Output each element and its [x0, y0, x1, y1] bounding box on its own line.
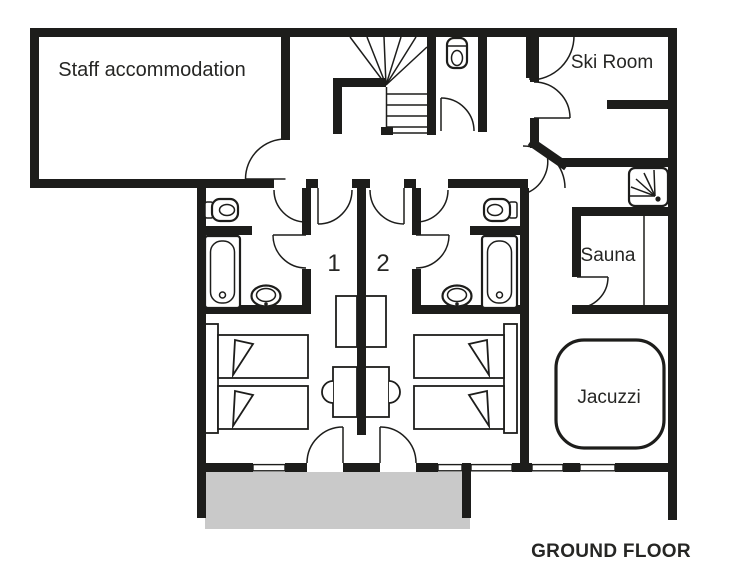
window [253, 465, 285, 471]
door-swing [273, 235, 306, 268]
shower-icon [629, 168, 668, 206]
bedroom-2-furniture [365, 296, 517, 433]
wardrobe [365, 296, 386, 347]
wall [563, 463, 580, 472]
shower-spray [654, 170, 655, 196]
stair-winder [367, 37, 386, 85]
floor-plan: Staff accommodation Ski Room Sauna Jacuz… [0, 0, 737, 580]
washbasin-bowl [448, 289, 467, 302]
washbasin-tap [455, 302, 459, 306]
wall [357, 188, 366, 435]
stair-winder [384, 37, 386, 85]
wall [404, 179, 416, 188]
label-sauna: Sauna [581, 245, 636, 266]
wall [333, 87, 342, 134]
terrace [205, 472, 470, 529]
bathroom-1-fixtures [205, 199, 281, 308]
headboard [504, 324, 517, 433]
label-staff-accommodation: Staff accommodation [58, 59, 246, 81]
shower-head [655, 196, 660, 201]
door-swing [416, 235, 449, 268]
wall [306, 179, 318, 188]
single-bed [218, 335, 308, 378]
wall [607, 100, 676, 109]
wall [197, 463, 253, 472]
door-swing [274, 190, 306, 222]
wall [427, 36, 436, 135]
wall [462, 463, 471, 518]
wall [512, 463, 532, 472]
window [532, 465, 563, 471]
wall [470, 226, 528, 235]
chair [389, 381, 400, 403]
wall [285, 463, 307, 472]
wall [197, 226, 252, 235]
wall [352, 179, 370, 188]
washbasin-tap [264, 302, 268, 306]
window [580, 465, 615, 471]
door-swing [523, 146, 565, 188]
door-swing [380, 427, 416, 463]
wall [530, 36, 539, 82]
single-bed [414, 335, 504, 378]
headboard [205, 324, 218, 433]
desk [333, 367, 357, 417]
wardrobe [336, 296, 357, 347]
toilet-bowl [488, 205, 503, 216]
bathtub-drain [220, 292, 226, 298]
wc-toilet [447, 38, 467, 68]
label-ski-room: Ski Room [571, 52, 653, 73]
bedroom-1-furniture [205, 296, 357, 433]
door-swing [577, 277, 608, 308]
window [471, 465, 512, 471]
desk [365, 367, 389, 417]
label-jacuzzi: Jacuzzi [577, 387, 640, 408]
wall [343, 463, 380, 472]
single-bed [414, 386, 504, 429]
shower [629, 168, 668, 206]
wall [281, 28, 290, 140]
wall [478, 36, 487, 132]
wall [30, 179, 274, 188]
door-swing [318, 190, 352, 224]
label-bedroom-1: 1 [327, 250, 340, 277]
label-bedroom-2: 2 [376, 250, 389, 277]
door-swing [441, 98, 474, 131]
wall [412, 188, 421, 235]
wall [30, 28, 676, 37]
label-ground-floor: GROUND FLOOR [531, 541, 691, 562]
wall [448, 179, 528, 188]
bathtub-drain [497, 292, 503, 298]
wall [520, 188, 529, 463]
single-bed [218, 386, 308, 429]
wall [416, 463, 438, 472]
window [438, 465, 462, 471]
wall [560, 158, 676, 167]
wall [30, 28, 39, 188]
toilet-bowl [220, 205, 235, 216]
door-swing [246, 139, 286, 179]
washbasin-bowl [257, 289, 276, 302]
wall [615, 463, 676, 472]
wall [572, 207, 676, 216]
chair [322, 381, 333, 403]
bathroom-2-fixtures [443, 199, 518, 308]
floor-plan-canvas: Staff accommodation Ski Room Sauna Jacuz… [0, 0, 737, 580]
stair-winder [350, 37, 386, 85]
door-swing [307, 427, 343, 463]
door-swing [370, 190, 404, 224]
wall [333, 78, 386, 87]
door-swing [534, 82, 570, 118]
toilet-bowl [452, 51, 463, 66]
